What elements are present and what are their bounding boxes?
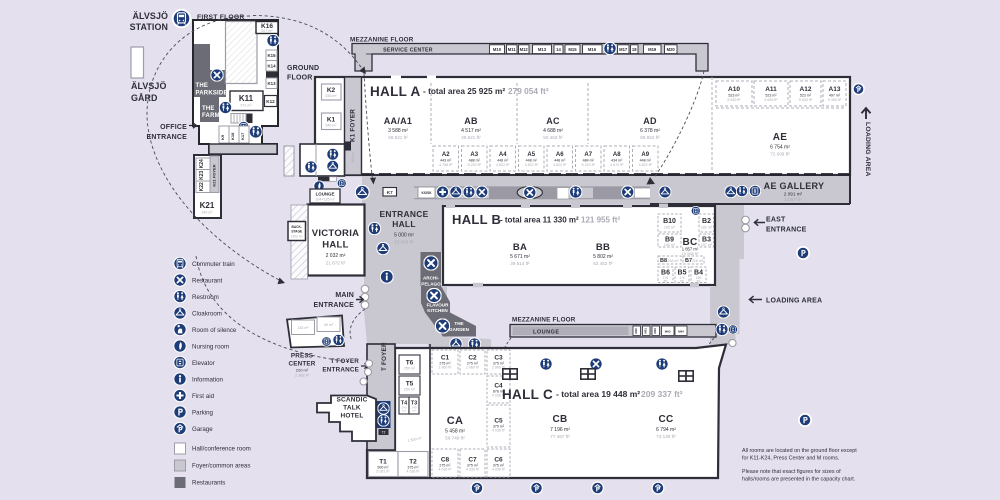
svg-text:THE: THE (196, 83, 209, 89)
svg-text:m²: m² (697, 279, 701, 283)
svg-text:T2: T2 (409, 459, 417, 466)
svg-text:M94: M94 (678, 329, 684, 333)
svg-text:B10: B10 (663, 218, 676, 225)
svg-text:2 960 ft²: 2 960 ft² (438, 366, 452, 370)
svg-text:AC: AC (546, 116, 560, 126)
svg-text:68 652 ft²: 68 652 ft² (640, 135, 660, 140)
svg-text:B8: B8 (660, 258, 667, 264)
svg-text:VICTORIA: VICTORIA (312, 228, 360, 239)
svg-text:K1 FOYER: K1 FOYER (350, 109, 357, 142)
svg-text:AE GALLERY: AE GALLERY (764, 181, 825, 191)
svg-text:271 m²: 271 m² (240, 104, 252, 108)
svg-text:T FOYER: T FOYER (381, 342, 388, 371)
svg-text:GARDEN: GARDEN (449, 327, 470, 332)
svg-text:209 337 ft²: 209 337 ft² (641, 389, 683, 399)
svg-text:4 688 m²: 4 688 m² (543, 128, 563, 134)
svg-text:M15: M15 (568, 47, 577, 52)
svg-text:527 m²: 527 m² (261, 29, 273, 33)
svg-text:72 699 ft²: 72 699 ft² (770, 152, 790, 157)
svg-text:4 036 ft²: 4 036 ft² (438, 468, 452, 472)
svg-text:4 036 ft²: 4 036 ft² (492, 468, 506, 472)
svg-text:K7: K7 (387, 190, 393, 195)
svg-text:Room of silence: Room of silence (192, 327, 237, 334)
svg-text:C2: C2 (468, 355, 477, 362)
svg-text:448 m²: 448 m² (640, 159, 652, 163)
svg-text:2 960 ft²: 2 960 ft² (466, 366, 480, 370)
svg-text:OFFICE: OFFICE (160, 124, 187, 131)
svg-text:250 m²: 250 m² (404, 367, 416, 371)
svg-text:5 458 m²: 5 458 m² (445, 429, 465, 435)
svg-text:K17: K17 (240, 132, 245, 140)
svg-text:3 588 m²: 3 588 m² (388, 128, 408, 134)
svg-text:K2: K2 (327, 87, 336, 94)
svg-text:A12: A12 (800, 86, 812, 93)
svg-text:TALK: TALK (343, 405, 361, 412)
svg-text:C5: C5 (494, 418, 503, 425)
svg-text:All rooms are located on the g: All rooms are located on the ground floo… (742, 448, 857, 454)
svg-text:Parking: Parking (192, 409, 214, 416)
svg-text:497 m²: 497 m² (829, 94, 841, 98)
svg-text:192 m²: 192 m² (664, 226, 676, 230)
svg-text:T FOYER: T FOYER (330, 358, 359, 365)
svg-text:for K11-K24, Press Center and: for K11-K24, Press Center and M rooms. (742, 456, 839, 462)
svg-text:K23: K23 (199, 171, 205, 180)
svg-text:5 350 ft²: 5 350 ft² (828, 98, 842, 102)
svg-text:CENTER: CENTER (288, 361, 315, 368)
svg-text:6 378 m²: 6 378 m² (640, 128, 660, 134)
svg-text:Please note that exact figures: Please note that exact figures for sizes… (742, 469, 841, 475)
svg-text:488 m²: 488 m² (469, 159, 481, 163)
svg-text:M90: M90 (634, 328, 638, 334)
svg-text:4 036 ft²: 4 036 ft² (492, 429, 506, 433)
svg-text:250 m²: 250 m² (404, 388, 416, 392)
svg-text:ENTRANCE: ENTRANCE (322, 367, 359, 374)
svg-text:ENTRANCE: ENTRANCE (380, 209, 429, 219)
svg-text:ENTRANCE: ENTRANCE (147, 134, 188, 141)
svg-text:halls/rooms are presented in t: halls/rooms are presented in the capacit… (742, 477, 855, 483)
svg-text:22 507 ft²: 22 507 ft² (784, 197, 802, 202)
svg-text:58 621 ft²: 58 621 ft² (388, 135, 408, 140)
svg-text:AE: AE (773, 132, 788, 143)
svg-text:4 822 ft²: 4 822 ft² (496, 163, 510, 167)
svg-text:Restroom: Restroom (192, 294, 219, 301)
svg-text:HALL A: HALL A (370, 84, 421, 99)
svg-text:LOUNGE: LOUNGE (533, 330, 560, 336)
svg-text:216 m²: 216 m² (667, 259, 679, 263)
svg-text:39 514 ft²: 39 514 ft² (510, 261, 530, 266)
svg-text:- total area 25 925 m²: - total area 25 925 m² (423, 86, 505, 96)
svg-text:M92: M92 (653, 328, 657, 334)
svg-text:SERVICE CENTER: SERVICE CENTER (383, 48, 433, 54)
svg-text:182 m²: 182 m² (701, 226, 713, 230)
svg-text:216 m²: 216 m² (692, 259, 704, 263)
svg-text:STATION: STATION (130, 22, 168, 32)
svg-text:EAST: EAST (766, 217, 786, 224)
svg-text:448 m²: 448 m² (497, 159, 509, 163)
svg-text:PARKSIDE: PARKSIDE (196, 91, 228, 97)
svg-text:A4: A4 (499, 152, 507, 158)
svg-text:HOTEL: HOTEL (340, 413, 363, 420)
svg-text:THE: THE (202, 106, 215, 112)
svg-text:C7: C7 (468, 457, 477, 464)
svg-text:443 m²: 443 m² (440, 159, 452, 163)
svg-text:Foyer/common areas: Foyer/common areas (192, 463, 250, 470)
svg-text:- total area 19 448 m²: - total area 19 448 m² (556, 389, 640, 399)
svg-text:5 381 ft²: 5 381 ft² (376, 470, 390, 474)
svg-text:A9: A9 (641, 152, 649, 158)
svg-text:6 754 m²: 6 754 m² (770, 145, 790, 151)
svg-text:4 822 ft²: 4 822 ft² (553, 163, 567, 167)
svg-text:M12: M12 (520, 47, 529, 52)
svg-text:ENTRANCE: ENTRANCE (766, 227, 807, 234)
svg-text:M93: M93 (665, 329, 671, 333)
svg-text:B2: B2 (702, 218, 711, 225)
svg-text:HALL: HALL (322, 240, 349, 251)
svg-text:ENTRANCE: ENTRANCE (314, 302, 355, 309)
svg-text:2 368 ft²: 2 368 ft² (295, 374, 310, 378)
svg-text:AB: AB (464, 116, 478, 126)
svg-text:530 m²: 530 m² (325, 94, 337, 98)
svg-text:121 955 ft²: 121 955 ft² (581, 216, 620, 225)
svg-text:A7: A7 (584, 152, 592, 158)
svg-text:LOUNGE: LOUNGE (316, 192, 335, 197)
svg-text:M16: M16 (588, 47, 597, 52)
svg-text:K12: K12 (266, 99, 275, 104)
svg-text:A5: A5 (527, 152, 535, 158)
svg-text:HALL: HALL (392, 219, 416, 229)
svg-text:53 819 ft²: 53 819 ft² (394, 240, 414, 245)
svg-text:Nursing room: Nursing room (192, 343, 229, 350)
svg-text:HALL C: HALL C (502, 387, 553, 402)
svg-text:LOADING AREA: LOADING AREA (864, 122, 871, 177)
svg-text:MAIN: MAIN (335, 292, 354, 299)
svg-text:FLAVOUR: FLAVOUR (427, 303, 450, 308)
svg-text:4 036 ft²: 4 036 ft² (406, 470, 420, 474)
svg-text:BACK-: BACK- (292, 225, 302, 229)
svg-text:4 822 ft²: 4 822 ft² (639, 163, 653, 167)
svg-text:Elevator: Elevator (192, 360, 215, 367)
svg-text:C3: C3 (494, 355, 503, 362)
svg-text:m²: m² (664, 279, 668, 283)
svg-text:M20: M20 (667, 47, 676, 52)
svg-text:K24: K24 (199, 159, 205, 168)
svg-text:523 m²: 523 m² (728, 94, 740, 98)
svg-text:135 m²: 135 m² (297, 326, 309, 330)
svg-text:Information: Information (192, 376, 224, 383)
svg-text:K22: K22 (199, 182, 205, 191)
svg-text:4 768 ft²: 4 768 ft² (439, 163, 453, 167)
svg-text:4 822 ft²: 4 822 ft² (525, 163, 539, 167)
svg-text:M91: M91 (643, 328, 647, 334)
svg-text:14: 14 (556, 47, 561, 52)
svg-text:MEZZANINE FLOOR: MEZZANINE FLOOR (350, 37, 414, 44)
svg-text:THE: THE (454, 321, 463, 326)
svg-text:950 m²: 950 m² (351, 151, 355, 163)
svg-text:197 m²: 197 m² (701, 243, 713, 247)
svg-text:104+125 m²: 104+125 m² (315, 198, 335, 202)
svg-text:C1: C1 (441, 355, 450, 362)
svg-text:M10: M10 (493, 47, 502, 52)
svg-text:484 m²: 484 m² (583, 159, 595, 163)
svg-text:T5: T5 (406, 381, 414, 388)
svg-text:A8: A8 (613, 152, 621, 158)
svg-text:Restaurants: Restaurants (192, 480, 225, 487)
svg-text:- total area 11 330 m²: - total area 11 330 m² (500, 216, 579, 225)
svg-text:448 m²: 448 m² (554, 159, 566, 163)
svg-text:First aid: First aid (192, 393, 215, 400)
svg-text:62 452 ft²: 62 452 ft² (593, 261, 613, 266)
svg-text:K18: K18 (230, 132, 235, 140)
svg-text:K9: K9 (220, 134, 225, 140)
svg-text:ÄLVSJÖ: ÄLVSJÖ (133, 11, 168, 21)
svg-text:m²: m² (680, 279, 684, 283)
svg-text:77 467 ft²: 77 467 ft² (550, 434, 570, 439)
svg-text:BB: BB (596, 242, 610, 253)
svg-text:HALL B: HALL B (452, 212, 501, 227)
svg-text:50 463 ft²: 50 463 ft² (543, 135, 563, 140)
svg-text:K21 FOYER: K21 FOYER (212, 164, 217, 186)
svg-text:190 m²: 190 m² (664, 243, 676, 247)
svg-text:Garage: Garage (192, 426, 213, 433)
svg-text:5 802 m²: 5 802 m² (593, 254, 613, 260)
svg-text:49 m²: 49 m² (324, 323, 334, 327)
svg-text:K14: K14 (267, 64, 276, 69)
svg-text:PELAGO: PELAGO (421, 282, 441, 287)
svg-text:21 872 ft²: 21 872 ft² (326, 261, 346, 266)
svg-text:7 196 m²: 7 196 m² (550, 427, 570, 433)
svg-text:A6: A6 (556, 152, 564, 158)
svg-text:M11: M11 (508, 47, 517, 52)
svg-text:CA: CA (447, 415, 464, 427)
svg-text:AD: AD (643, 116, 657, 126)
svg-text:2 032 m²: 2 032 m² (326, 253, 346, 259)
svg-text:KITCHEN: KITCHEN (427, 308, 448, 313)
svg-text:M19: M19 (648, 47, 657, 52)
svg-text:GROUND: GROUND (287, 65, 319, 72)
svg-text:540 m²: 540 m² (325, 124, 337, 128)
svg-text:5 210 ft²: 5 210 ft² (582, 163, 596, 167)
svg-text:4 672 ft²: 4 672 ft² (610, 163, 624, 167)
svg-text:A10: A10 (728, 86, 740, 93)
svg-text:Commuter train: Commuter train (192, 261, 235, 268)
svg-text:STAGE: STAGE (291, 230, 302, 234)
svg-text:58 749 ft²: 58 749 ft² (445, 436, 465, 441)
svg-text:A3: A3 (470, 152, 478, 158)
svg-text:K11: K11 (239, 94, 254, 103)
svg-text:C8: C8 (441, 457, 450, 464)
svg-text:2 091 m²: 2 091 m² (784, 192, 803, 197)
svg-text:T1: T1 (379, 459, 387, 466)
svg-text:5 630 ft²: 5 630 ft² (799, 98, 813, 102)
svg-text:m²: m² (402, 409, 406, 413)
svg-text:BA: BA (513, 242, 527, 253)
svg-text:SCANDIC: SCANDIC (336, 397, 367, 404)
svg-text:279 054 ft²: 279 054 ft² (508, 86, 549, 96)
svg-text:448 m²: 448 m² (526, 159, 538, 163)
svg-text:K21: K21 (200, 201, 215, 210)
svg-text:A2: A2 (442, 152, 450, 158)
svg-text:4 036 ft²: 4 036 ft² (466, 468, 480, 472)
svg-text:1102 m²: 1102 m² (291, 235, 302, 239)
svg-text:C6: C6 (494, 457, 503, 464)
svg-text:M17: M17 (619, 47, 628, 52)
svg-text:5 671 m²: 5 671 m² (510, 254, 530, 260)
svg-text:ÄLVSJÖ: ÄLVSJÖ (131, 81, 166, 91)
svg-text:5 253 ft²: 5 253 ft² (468, 163, 482, 167)
svg-text:Restaurant: Restaurant (192, 277, 223, 284)
svg-text:T2: T2 (382, 431, 386, 435)
svg-text:CB: CB (552, 414, 567, 425)
svg-text:CC: CC (658, 414, 673, 425)
svg-text:5 000 m²: 5 000 m² (394, 233, 414, 239)
svg-text:A11: A11 (765, 86, 777, 93)
svg-text:523 m²: 523 m² (800, 94, 812, 98)
svg-text:4 517 m²: 4 517 m² (461, 128, 481, 134)
svg-text:5 630 ft²: 5 630 ft² (727, 98, 741, 102)
svg-text:73 130 ft²: 73 130 ft² (656, 434, 676, 439)
svg-text:FLOOR: FLOOR (287, 75, 313, 82)
svg-text:Cloakroom: Cloakroom (192, 310, 222, 317)
svg-text:240 m²: 240 m² (201, 211, 213, 215)
svg-text:18: 18 (632, 47, 637, 52)
svg-text:FARM: FARM (202, 113, 220, 119)
svg-text:GÅRD: GÅRD (131, 93, 158, 103)
svg-text:Hall/conference room: Hall/conference room (192, 446, 251, 453)
svg-text:K15: K15 (267, 53, 276, 58)
svg-text:5 630 ft²: 5 630 ft² (764, 98, 778, 102)
svg-text:523 m²: 523 m² (765, 94, 777, 98)
svg-text:ARCHI-: ARCHI- (423, 276, 440, 281)
svg-text:M13: M13 (538, 47, 547, 52)
svg-text:PRESS: PRESS (291, 353, 313, 360)
svg-text:LOADING AREA: LOADING AREA (766, 298, 822, 305)
svg-text:K13: K13 (267, 81, 276, 86)
svg-text:KIOSK: KIOSK (421, 191, 432, 195)
svg-text:T6: T6 (406, 360, 414, 367)
svg-text:6 794 m²: 6 794 m² (656, 427, 676, 433)
svg-text:A13: A13 (829, 86, 841, 93)
svg-text:MEZZANINE FLOOR: MEZZANINE FLOOR (512, 317, 576, 324)
svg-text:AA/A1: AA/A1 (384, 116, 413, 126)
svg-text:220 m²: 220 m² (296, 368, 309, 373)
svg-text:K1: K1 (327, 117, 336, 124)
svg-text:434 m²: 434 m² (611, 159, 623, 163)
svg-text:m²: m² (412, 409, 416, 413)
svg-text:48 621 ft²: 48 621 ft² (461, 135, 481, 140)
svg-text:19 988 ft²: 19 988 ft² (682, 251, 700, 256)
